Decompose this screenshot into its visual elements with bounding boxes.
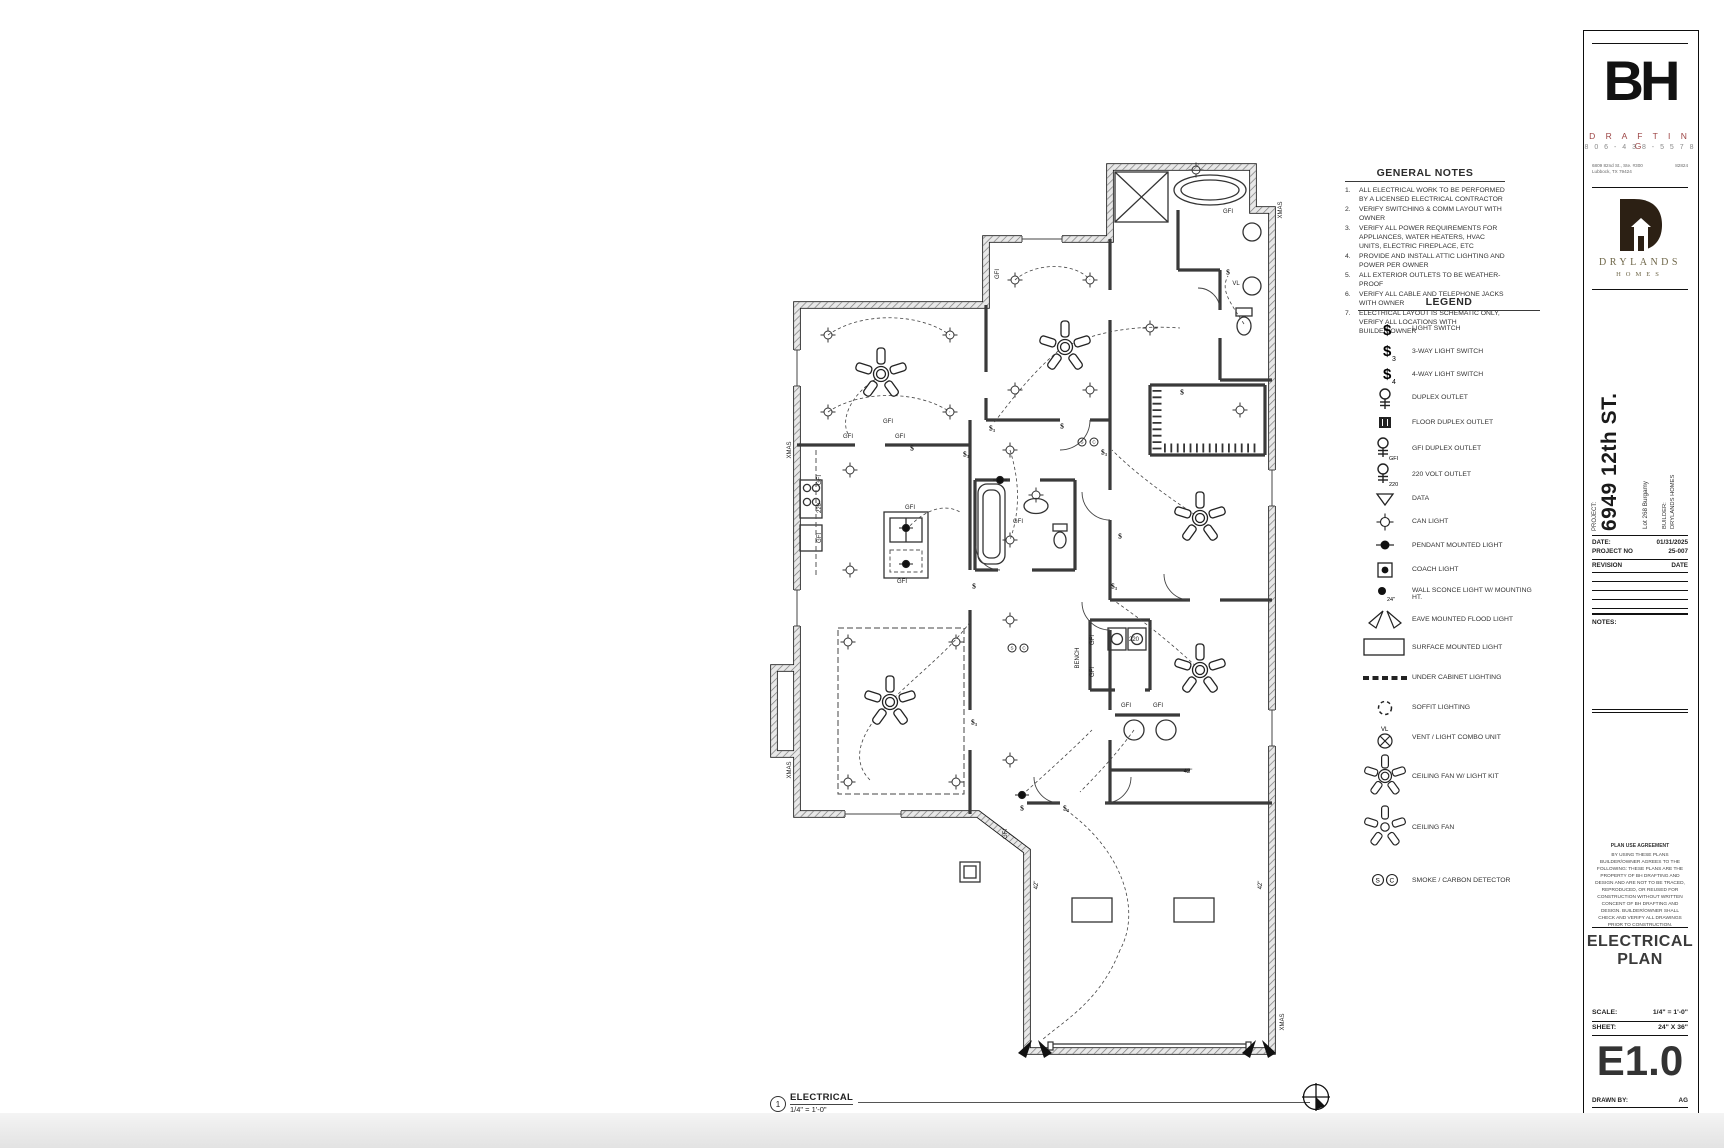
- can-light-icon: [1358, 513, 1412, 531]
- vent-light-combo-icon: VL: [1358, 724, 1412, 752]
- coach-light-icon: [1358, 561, 1412, 579]
- general-note-item: 5.ALL EXTERIOR OUTLETS TO BE WEATHER-PRO…: [1345, 272, 1505, 290]
- legend-label: SMOKE / CARBON DETECTOR: [1412, 877, 1510, 884]
- legend-label: 220 VOLT OUTLET: [1412, 471, 1471, 478]
- title-underline: [858, 1102, 1310, 1103]
- general-note-item: 4.PROVIDE AND INSTALL ATTIC LIGHTING AND…: [1345, 253, 1505, 271]
- divider: [1592, 613, 1688, 615]
- legend-label: GFI DUPLEX OUTLET: [1412, 445, 1481, 452]
- title-block: BH D R A F T I N G 8 0 6 - 4 3 8 - 5 5 7…: [1583, 30, 1699, 1116]
- desk-background: [0, 1113, 1724, 1148]
- divider: [1592, 1107, 1688, 1108]
- legend-row: $4 4-WAY LIGHT SWITCH: [1358, 363, 1540, 386]
- legend-row: SC SMOKE / CARBON DETECTOR: [1358, 855, 1540, 905]
- divider: [1592, 1021, 1688, 1022]
- bh-address: 6809 82nd St., Ste. #300Lubbock, TX 7942…: [1592, 163, 1688, 175]
- svg-text:3: 3: [1392, 356, 1396, 362]
- legend-row: UNDER CABINET LIGHTING: [1358, 662, 1540, 693]
- divider: [1592, 187, 1688, 188]
- three-way-switch-icon: $3: [1358, 342, 1412, 362]
- general-notes-title: GENERAL NOTES: [1345, 167, 1505, 179]
- date-row: DATE:01/31/2025: [1592, 539, 1688, 546]
- soffit-light-icon: [1358, 699, 1412, 717]
- bh-phone: 8 0 6 - 4 3 8 - 5 5 7 8: [1584, 144, 1696, 151]
- scale-row: SCALE:1/4" = 1'-0": [1592, 1009, 1688, 1016]
- legend-row: CEILING FAN: [1358, 799, 1540, 855]
- legend-label: PENDANT MOUNTED LIGHT: [1412, 542, 1503, 549]
- svg-text:$: $: [1383, 322, 1392, 339]
- duplex-outlet-icon: [1358, 386, 1412, 410]
- divider: [1592, 43, 1688, 44]
- divider: [1592, 590, 1688, 591]
- smoke-carbon-detector-icon: SC: [1358, 871, 1412, 889]
- legend-row: SURFACE MOUNTED LIGHT: [1358, 632, 1540, 662]
- divider: [1345, 181, 1505, 182]
- legend-label: SURFACE MOUNTED LIGHT: [1412, 644, 1502, 651]
- light-switch-icon: $: [1358, 319, 1412, 339]
- plan-use-title: PLAN USE AGREEMENT: [1590, 843, 1690, 849]
- legend-label: 4-WAY LIGHT SWITCH: [1412, 371, 1483, 378]
- flood-light-icon: [1358, 607, 1412, 631]
- bh-address-lines: 6809 82nd St., Ste. #300Lubbock, TX 7942…: [1592, 163, 1643, 175]
- legend-label: CAN LIGHT: [1412, 518, 1448, 525]
- svg-text:C: C: [1390, 878, 1395, 885]
- floor-duplex-outlet-icon: [1358, 414, 1412, 430]
- project-lot: Lot 268 Burgamy: [1642, 481, 1649, 529]
- four-way-switch-icon: $4: [1358, 365, 1412, 385]
- svg-text:$: $: [1383, 366, 1392, 383]
- detail-number-bubble: 1: [770, 1096, 786, 1112]
- gfi-duplex-outlet-icon: GFI: [1358, 435, 1412, 461]
- legend-row: EAVE MOUNTED FLOOD LIGHT: [1358, 606, 1540, 632]
- legend-row: PENDANT MOUNTED LIGHT: [1358, 533, 1540, 557]
- drawn-by-row: DRAWN BY:AG: [1592, 1097, 1688, 1104]
- sheet-number: E1.0: [1584, 1037, 1696, 1085]
- divider: [1592, 1035, 1688, 1036]
- general-note-item: 2.VERIFY SWITCHING & COMM LAYOUT WITH OW…: [1345, 206, 1505, 224]
- drylands-wordmark: DRYLANDS: [1584, 257, 1696, 268]
- svg-text:VL: VL: [1381, 727, 1389, 733]
- legend-label: SOFFIT LIGHTING: [1412, 704, 1470, 711]
- legend-row: COACH LIGHT: [1358, 557, 1540, 582]
- legend-title: LEGEND: [1358, 296, 1540, 308]
- builder-info: BUILDER:DRYLANDS HOMES: [1662, 475, 1678, 529]
- outlet-220v-icon: 220: [1358, 461, 1412, 487]
- legend-label: FLOOR DUPLEX OUTLET: [1412, 419, 1493, 426]
- legend-label: LIGHT SWITCH: [1412, 325, 1461, 332]
- legend-label: WALL SCONCE LIGHT W/ MOUNTING HT.: [1412, 587, 1540, 601]
- divider: [1592, 927, 1688, 928]
- drawing-title: ELECTRICAL: [790, 1092, 853, 1105]
- divider: [1592, 599, 1688, 600]
- svg-text:220: 220: [1389, 482, 1398, 487]
- divider: [1592, 289, 1688, 290]
- general-note-item: 3.VERIFY ALL POWER REQUIREMENTS FOR APPL…: [1345, 225, 1505, 252]
- general-note-item: 1.ALL ELECTRICAL WORK TO BE PERFORMED BY…: [1345, 187, 1505, 205]
- legend-label: CEILING FAN W/ LIGHT KIT: [1412, 773, 1499, 780]
- legend-row: DUPLEX OUTLET: [1358, 386, 1540, 409]
- legend-label: UNDER CABINET LIGHTING: [1412, 674, 1501, 681]
- bh-address-right: 82824: [1675, 163, 1688, 175]
- svg-text:S: S: [1376, 878, 1381, 885]
- drylands-homes-wordmark: HOMES: [1584, 271, 1696, 278]
- svg-text:4: 4: [1392, 379, 1396, 385]
- legend-row: CAN LIGHT: [1358, 510, 1540, 533]
- data-jack-icon: [1358, 491, 1412, 507]
- pendant-light-icon: [1358, 537, 1412, 553]
- divider: [1358, 310, 1540, 311]
- under-cabinet-light-icon: [1358, 673, 1412, 683]
- project-name: 6949 12th ST.: [1598, 393, 1622, 531]
- wall-sconce-icon: 24": [1358, 584, 1412, 604]
- plan-use-body: BY USING THESE PLANS BUILDER/OWNER AGREE…: [1592, 853, 1688, 929]
- legend-row: $3 3-WAY LIGHT SWITCH: [1358, 340, 1540, 363]
- legend-label: EAVE MOUNTED FLOOD LIGHT: [1412, 616, 1513, 623]
- legend-label: VENT / LIGHT COMBO UNIT: [1412, 734, 1501, 741]
- legend-row: DATA: [1358, 487, 1540, 510]
- legend-label: CEILING FAN: [1412, 824, 1454, 831]
- sheet-size-row: SHEET:24" X 36": [1592, 1024, 1688, 1031]
- project-no-row: PROJECT NO25-007: [1592, 548, 1688, 555]
- notes-label: NOTES:: [1592, 619, 1617, 626]
- legend: LEGEND $ LIGHT SWITCH $3 3-WAY LIGHT SWI…: [1358, 296, 1540, 905]
- revision-row: REVISIONDATE: [1592, 562, 1688, 569]
- floor-plan: [760, 150, 1340, 1110]
- legend-row: $ LIGHT SWITCH: [1358, 317, 1540, 340]
- divider: [1592, 608, 1688, 609]
- legend-label: COACH LIGHT: [1412, 566, 1458, 573]
- legend-label: DATA: [1412, 495, 1429, 502]
- svg-text:24": 24": [1387, 597, 1395, 603]
- drawing-sheet: GFIGFIGFIGFIGFIGFI220GFIGFIGFIGFIGFIGFIG…: [0, 0, 1724, 1148]
- legend-label: DUPLEX OUTLET: [1412, 394, 1468, 401]
- legend-row: CEILING FAN W/ LIGHT KIT: [1358, 753, 1540, 799]
- divider: [1592, 581, 1688, 582]
- legend-row: GFI GFI DUPLEX OUTLET: [1358, 435, 1540, 461]
- legend-row: FLOOR DUPLEX OUTLET: [1358, 409, 1540, 435]
- divider: [1592, 709, 1688, 710]
- legend-row: VL VENT / LIGHT COMBO UNIT: [1358, 722, 1540, 753]
- bh-logo: BH: [1584, 53, 1696, 109]
- drylands-logo: [1618, 199, 1662, 251]
- ceiling-fan-light-kit-icon: [1358, 754, 1412, 798]
- divider: [1592, 559, 1688, 560]
- legend-label: 3-WAY LIGHT SWITCH: [1412, 348, 1483, 355]
- ceiling-fan-icon: [1358, 805, 1412, 849]
- sheet-title: ELECTRICALPLAN: [1584, 933, 1696, 970]
- svg-text:$: $: [1383, 343, 1392, 360]
- divider: [1592, 535, 1688, 536]
- divider: [1592, 712, 1688, 713]
- legend-row: SOFFIT LIGHTING: [1358, 693, 1540, 722]
- legend-row: 24" WALL SCONCE LIGHT W/ MOUNTING HT.: [1358, 582, 1540, 606]
- surface-light-icon: [1358, 636, 1412, 658]
- divider: [1592, 572, 1688, 573]
- legend-row: 220 220 VOLT OUTLET: [1358, 461, 1540, 487]
